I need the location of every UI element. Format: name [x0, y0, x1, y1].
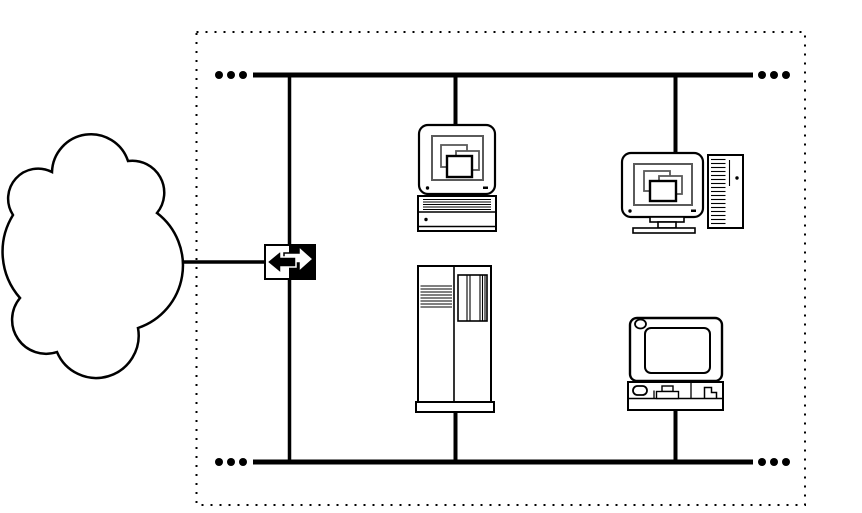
- server-tower-icon: [416, 266, 494, 412]
- trackball: [633, 386, 647, 395]
- server-base: [416, 402, 494, 412]
- server: [416, 266, 494, 462]
- top-bus-left-ellipsis-icon: [215, 71, 247, 79]
- desktop-base: [418, 196, 496, 231]
- diagram-canvas: [0, 0, 862, 513]
- bottom-bus: [215, 458, 790, 466]
- workstation-top: [418, 75, 496, 231]
- internet-cloud: [3, 134, 183, 378]
- workstation-right: [622, 75, 743, 233]
- laptop-icon: [628, 318, 723, 410]
- top-bus-right-ellipsis-icon: [758, 71, 790, 79]
- tower-case: [708, 155, 743, 228]
- desktop-computer-icon: [418, 125, 496, 231]
- power-led: [628, 209, 631, 212]
- laptop: [628, 318, 723, 462]
- monitor-switch: [691, 210, 696, 213]
- monitor-stand: [633, 217, 695, 233]
- lid-latch: [635, 320, 646, 329]
- bottom-bus-left-ellipsis-icon: [215, 458, 247, 466]
- server-drive-bay: [458, 275, 487, 321]
- monitor-switch: [483, 187, 488, 190]
- cloud-icon: [3, 134, 183, 378]
- bottom-bus-right-ellipsis-icon: [758, 458, 790, 466]
- desktop-with-tower-icon: [622, 153, 743, 233]
- power-led: [426, 186, 429, 189]
- network-diagram: [0, 0, 862, 513]
- tower-power-button: [735, 176, 738, 179]
- laptop-base: [628, 382, 723, 410]
- top-bus: [215, 71, 790, 79]
- router: [265, 244, 316, 280]
